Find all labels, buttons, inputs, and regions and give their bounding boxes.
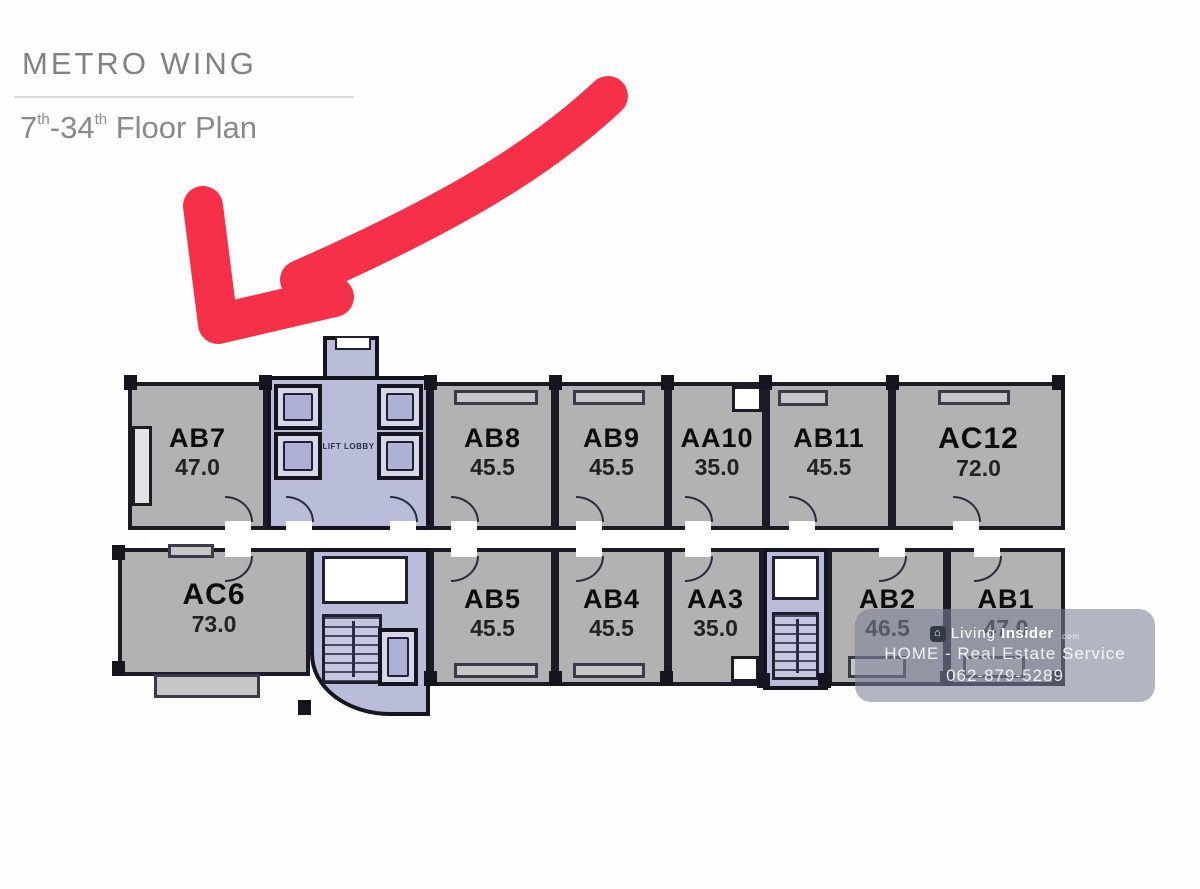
unit-area-label: 47.0 [175, 454, 220, 480]
balcony [573, 390, 645, 405]
door-arc [224, 496, 254, 530]
stair-landing [772, 556, 819, 600]
unit-id-label: AA3 [687, 585, 744, 615]
balcony [778, 390, 828, 406]
livinginsider-logo-icon: ⌂ [930, 626, 946, 642]
balcony [132, 426, 152, 506]
door-arc [788, 496, 818, 530]
balcony [938, 390, 1010, 405]
door-arc [952, 496, 982, 530]
watermark-badge: ⌂ LivingInsider.com HOME - Real Estate S… [855, 609, 1155, 702]
balcony [573, 663, 645, 678]
lift-lobby-label: LIFT LOBBY [271, 442, 426, 451]
unit-id-label: AB4 [583, 585, 640, 615]
door-arc [684, 548, 714, 582]
unit-id-label: AB7 [169, 424, 226, 454]
unit-area-label: 45.5 [589, 615, 634, 641]
lift-shaft [377, 432, 423, 480]
watermark-service-line: HOME - Real Estate Service [884, 644, 1125, 664]
unit-id-label: AB9 [583, 424, 640, 454]
door-arc [389, 496, 419, 530]
lift-lobby-core: LIFT LOBBY [267, 376, 430, 530]
stair-core [310, 548, 430, 716]
unit-area-label: 45.5 [470, 615, 515, 641]
unit-area-label: 73.0 [192, 611, 237, 637]
unit-id-label: AA10 [680, 424, 753, 454]
lift-shaft [274, 432, 322, 480]
brand-bold: Insider [1001, 625, 1054, 642]
watermark-brand: ⌂ LivingInsider.com [930, 625, 1080, 642]
structural-columns [0, 0, 13, 15]
balcony [732, 386, 762, 412]
balcony [154, 674, 260, 698]
unit-ab4: AB4 45.5 [555, 548, 668, 686]
unit-ac6: AC6 73.0 [118, 548, 310, 676]
unit-id-label: AB5 [464, 585, 521, 615]
brand-prefix: Living [951, 625, 996, 642]
unit-id-label: AB8 [464, 424, 521, 454]
service-room [322, 556, 408, 604]
unit-ab7: AB7 47.0 [128, 382, 267, 530]
lift-shaft [274, 384, 322, 430]
door-arc [450, 496, 480, 530]
door-arc [878, 548, 908, 582]
service-lift-shaft [378, 628, 418, 686]
unit-area-label: 35.0 [695, 454, 740, 480]
corridor [150, 530, 1065, 548]
door-arc [285, 496, 315, 530]
balcony [731, 656, 759, 682]
lift-car [387, 637, 409, 677]
unit-ab5: AB5 45.5 [430, 548, 555, 686]
door-arc [224, 548, 254, 582]
balcony [454, 390, 538, 405]
unit-id-label: AC6 [182, 578, 245, 611]
lift-shaft [377, 384, 423, 430]
stairs [772, 612, 819, 680]
unit-aa3: AA3 35.0 [668, 548, 763, 686]
lift-car [283, 393, 313, 421]
unit-area-label: 45.5 [470, 454, 515, 480]
lift-car [386, 393, 414, 421]
entry-door [335, 336, 371, 350]
unit-ab11: AB11 45.5 [766, 382, 892, 530]
unit-ab8: AB8 45.5 [430, 382, 555, 530]
unit-id-label: AC12 [938, 422, 1019, 455]
watermark-phone: 062-879-5289 [946, 666, 1064, 686]
floor-plan-image: METRO WING 7th-34th Floor Plan AB7 47.0 … [0, 0, 1200, 889]
stair-core-2 [763, 548, 828, 690]
door-arc [684, 496, 714, 530]
unit-aa10: AA10 35.0 [668, 382, 766, 530]
unit-area-label: 45.5 [589, 454, 634, 480]
stairs [322, 614, 382, 684]
unit-ab9: AB9 45.5 [555, 382, 668, 530]
door-arc [575, 496, 605, 530]
brand-tld: .com [1059, 632, 1080, 641]
unit-area-label: 45.5 [807, 454, 852, 480]
door-arc [575, 548, 605, 582]
balcony [454, 663, 538, 678]
unit-ac12: AC12 72.0 [892, 382, 1065, 530]
door-arc [973, 548, 1003, 582]
balcony [168, 544, 214, 558]
unit-area-label: 35.0 [693, 615, 738, 641]
door-arc [450, 548, 480, 582]
floor-plan-canvas: AB7 47.0 AB8 45.5 AB9 45.5 AA10 35.0 AB1… [0, 0, 1200, 889]
unit-id-label: AB11 [793, 424, 865, 454]
unit-area-label: 72.0 [956, 455, 1001, 481]
